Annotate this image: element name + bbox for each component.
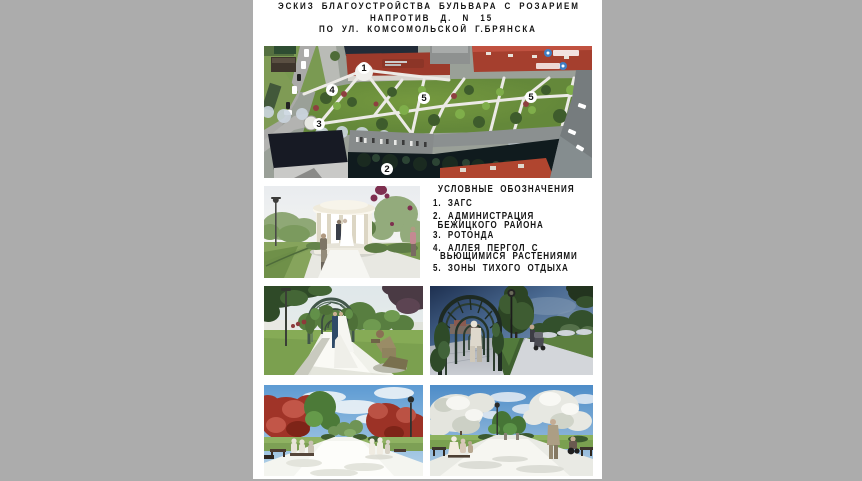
svg-text:2: 2 [384,164,389,175]
svg-text:1: 1 [361,63,367,74]
svg-text:3: 3 [316,119,321,130]
svg-text:5: 5 [421,93,427,104]
svg-text:5: 5 [528,92,534,103]
svg-text:4: 4 [329,85,335,96]
